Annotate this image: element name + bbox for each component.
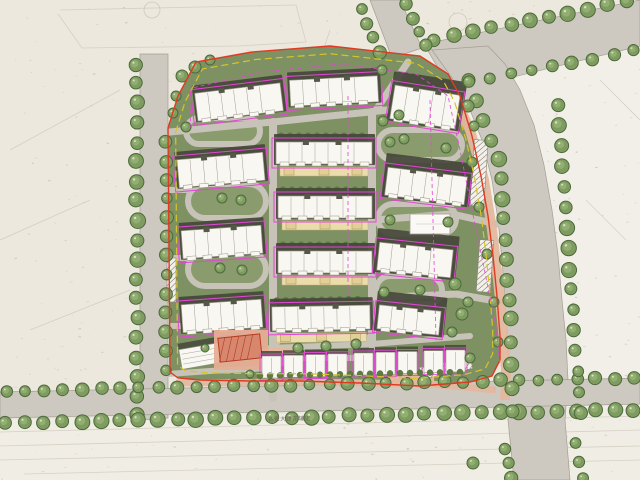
tree xyxy=(447,327,457,337)
balcony xyxy=(396,270,405,275)
tree xyxy=(130,76,143,89)
tree xyxy=(131,234,144,247)
tree xyxy=(129,58,142,71)
garden-pavilion xyxy=(352,277,362,284)
balcony xyxy=(381,268,390,273)
tree xyxy=(75,415,90,430)
balcony xyxy=(215,182,224,187)
tree xyxy=(385,215,395,225)
hedge-tree xyxy=(447,369,453,375)
building-M1 xyxy=(272,133,376,176)
survey-mark xyxy=(151,436,152,437)
survey-mark xyxy=(258,478,259,479)
tree xyxy=(378,116,388,126)
balcony xyxy=(308,328,317,332)
hedge-tree xyxy=(307,372,313,378)
survey-mark xyxy=(15,60,16,61)
tree xyxy=(565,283,577,295)
survey-mark xyxy=(460,448,462,449)
tree xyxy=(208,410,223,425)
balcony xyxy=(356,327,365,331)
tree xyxy=(570,438,581,449)
balcony xyxy=(359,100,368,104)
tree xyxy=(589,403,603,417)
survey-mark xyxy=(123,7,125,8)
balcony xyxy=(276,329,285,333)
tree xyxy=(437,406,452,421)
tree xyxy=(503,294,516,307)
survey-mark xyxy=(24,112,25,113)
balcony xyxy=(436,199,445,204)
balcony xyxy=(187,256,196,261)
building-L1 xyxy=(172,144,269,192)
balcony xyxy=(330,271,339,275)
tree xyxy=(367,31,378,42)
stair-core xyxy=(336,140,342,145)
survey-mark xyxy=(611,471,612,472)
survey-mark xyxy=(81,322,82,323)
tree xyxy=(561,262,576,277)
tree xyxy=(497,212,510,225)
balcony xyxy=(183,185,192,190)
tree xyxy=(526,65,537,76)
survey-mark xyxy=(625,344,628,345)
survey-mark xyxy=(344,427,346,428)
balcony xyxy=(340,328,349,332)
tree xyxy=(130,213,146,229)
site-plan-drawing: 各置大建花辅里 xyxy=(0,0,640,480)
stair-core xyxy=(410,168,417,174)
tree xyxy=(495,192,510,207)
tree xyxy=(455,405,471,421)
balcony xyxy=(324,328,333,332)
stair-core xyxy=(400,242,406,248)
survey-mark xyxy=(556,206,557,207)
survey-mark xyxy=(339,14,340,15)
survey-mark xyxy=(35,451,36,452)
tree xyxy=(567,323,580,336)
tree xyxy=(417,407,430,420)
tree xyxy=(37,416,50,429)
tree xyxy=(628,372,640,385)
kindergarten-building xyxy=(217,334,262,362)
survey-mark xyxy=(426,23,429,25)
balcony xyxy=(420,197,429,202)
survey-mark xyxy=(326,20,328,21)
tree xyxy=(160,156,173,169)
tree xyxy=(463,297,473,307)
tree xyxy=(129,351,143,365)
survey-mark xyxy=(461,9,463,10)
tree xyxy=(491,151,506,166)
tree xyxy=(441,143,451,153)
survey-mark xyxy=(553,209,554,210)
tree xyxy=(209,381,221,393)
tree xyxy=(504,336,517,349)
survey-mark xyxy=(80,370,82,371)
survey-mark xyxy=(109,61,111,63)
hedge-tree xyxy=(407,370,413,376)
stair-core xyxy=(425,245,431,251)
survey-mark xyxy=(625,375,627,376)
tree xyxy=(131,413,145,427)
tree xyxy=(248,380,260,392)
tree xyxy=(608,403,623,418)
stair-core xyxy=(203,227,209,232)
building-M2 xyxy=(274,187,376,230)
stair-core xyxy=(344,75,350,80)
balcony xyxy=(327,102,336,106)
tree xyxy=(217,193,227,203)
survey-mark xyxy=(59,346,60,347)
garden-pavilion xyxy=(280,335,290,342)
tree xyxy=(160,174,172,186)
tree xyxy=(504,357,519,372)
stair-core xyxy=(230,299,236,304)
balcony xyxy=(397,329,406,334)
balcony xyxy=(346,271,355,275)
survey-mark xyxy=(14,258,17,259)
tree xyxy=(443,217,453,227)
survey-mark xyxy=(630,117,633,118)
tree xyxy=(399,134,409,144)
garden-pavilion xyxy=(320,277,330,284)
tree xyxy=(114,382,126,394)
tree xyxy=(171,381,184,394)
balcony xyxy=(251,251,260,256)
tree xyxy=(475,406,488,419)
tree xyxy=(580,2,595,17)
stair-core xyxy=(437,171,444,177)
balcony xyxy=(219,254,228,259)
garden-pavilion xyxy=(352,222,362,229)
survey-mark xyxy=(533,5,535,6)
tree xyxy=(463,76,474,87)
survey-mark xyxy=(556,113,558,114)
tree xyxy=(131,137,144,150)
survey-mark xyxy=(488,10,491,11)
tree xyxy=(150,412,165,427)
survey-mark xyxy=(173,73,174,74)
survey-mark xyxy=(371,443,374,444)
tree xyxy=(160,230,172,242)
tree xyxy=(324,379,335,390)
survey-mark xyxy=(63,92,65,93)
tree xyxy=(449,278,461,290)
survey-mark xyxy=(66,271,67,272)
survey-mark xyxy=(107,143,109,144)
survey-mark xyxy=(57,369,58,370)
tree xyxy=(499,252,513,266)
tree xyxy=(401,377,414,390)
tree xyxy=(499,443,510,454)
stair-core xyxy=(203,301,209,306)
tree xyxy=(342,408,356,422)
garden-pavilion xyxy=(284,168,294,175)
survey-mark xyxy=(90,105,93,106)
garden-pavilion xyxy=(316,334,326,341)
tree xyxy=(467,457,479,469)
stair-core xyxy=(435,89,442,95)
tree xyxy=(0,416,11,429)
stair-core xyxy=(304,249,310,254)
tree xyxy=(628,45,639,56)
stair-core xyxy=(201,155,207,161)
balcony xyxy=(344,162,353,166)
tree xyxy=(130,252,145,267)
balcony xyxy=(292,328,301,332)
tree xyxy=(555,159,570,174)
tree xyxy=(131,311,145,325)
tree xyxy=(531,406,545,420)
balcony xyxy=(314,216,323,220)
survey-mark xyxy=(101,352,103,353)
balcony xyxy=(282,216,291,220)
tree xyxy=(465,24,480,39)
balcony xyxy=(311,103,320,107)
balcony xyxy=(295,104,304,108)
tree xyxy=(533,375,543,385)
tree xyxy=(181,122,191,132)
balcony xyxy=(203,255,212,260)
balcony xyxy=(202,118,211,123)
tree xyxy=(504,311,519,326)
garden-pavilion xyxy=(319,168,329,175)
survey-mark xyxy=(423,477,424,478)
balcony xyxy=(203,329,212,334)
stair-core xyxy=(304,194,310,199)
garden-pavilion xyxy=(286,277,296,284)
tree xyxy=(94,413,109,428)
tree xyxy=(160,211,173,224)
tree xyxy=(227,411,241,425)
tree xyxy=(550,404,564,418)
balcony xyxy=(280,162,289,166)
tree xyxy=(361,409,374,422)
hedge-tree xyxy=(297,372,303,378)
hedge-tree xyxy=(377,371,383,377)
tree xyxy=(555,139,569,153)
garden-pavilion xyxy=(320,222,330,229)
survey-mark xyxy=(48,180,51,181)
tree xyxy=(505,18,519,32)
tree xyxy=(129,291,142,304)
tree xyxy=(321,341,331,351)
stair-core xyxy=(417,307,423,313)
tree xyxy=(380,407,395,422)
stair-core xyxy=(230,225,236,230)
hedge-tree xyxy=(397,370,403,376)
tree xyxy=(380,377,391,388)
survey-mark xyxy=(568,198,570,199)
hedge-tree xyxy=(457,369,463,375)
survey-mark xyxy=(26,18,28,19)
tree xyxy=(130,95,144,109)
survey-mark xyxy=(547,151,548,152)
stair-core xyxy=(333,304,339,309)
stair-core xyxy=(230,153,236,159)
balcony xyxy=(296,162,305,166)
balcony xyxy=(428,274,437,279)
tree xyxy=(506,405,519,418)
tree xyxy=(574,406,587,419)
townhouse xyxy=(444,345,467,374)
tree xyxy=(56,415,69,428)
garden-pavilion xyxy=(352,168,362,175)
tree xyxy=(38,385,50,397)
tree xyxy=(76,383,90,397)
tree xyxy=(484,73,495,84)
tree xyxy=(456,308,468,320)
survey-mark xyxy=(31,72,32,73)
balcony xyxy=(199,183,208,188)
tree xyxy=(415,285,425,295)
tree xyxy=(505,381,519,395)
balcony xyxy=(343,101,352,105)
tree xyxy=(394,110,404,120)
tree xyxy=(188,412,204,428)
tree xyxy=(361,18,373,30)
tree xyxy=(56,384,68,396)
tree xyxy=(1,386,13,398)
tree xyxy=(565,56,578,69)
balcony xyxy=(388,194,397,199)
tree xyxy=(129,153,144,168)
survey-mark xyxy=(268,449,269,450)
stair-core xyxy=(336,194,342,199)
balcony xyxy=(249,112,258,117)
survey-mark xyxy=(116,221,118,222)
tree xyxy=(130,116,143,129)
tree xyxy=(586,53,598,65)
survey-mark xyxy=(113,99,114,100)
hedge-tree xyxy=(347,371,353,377)
balcony xyxy=(187,330,196,335)
stair-core xyxy=(247,84,254,90)
tree xyxy=(406,12,419,25)
tree xyxy=(573,387,584,398)
tree xyxy=(438,375,451,388)
tree xyxy=(129,193,143,207)
tree xyxy=(113,414,126,427)
tree xyxy=(447,28,462,43)
survey-mark xyxy=(70,281,73,282)
tree xyxy=(608,49,620,61)
tree xyxy=(552,374,563,385)
tree xyxy=(322,410,335,423)
tree xyxy=(500,274,514,288)
stair-core xyxy=(336,249,342,254)
tree xyxy=(494,373,507,386)
stair-core xyxy=(299,304,305,309)
tree xyxy=(495,172,508,185)
balcony xyxy=(234,114,243,119)
tree xyxy=(236,195,246,205)
tree xyxy=(559,201,572,214)
tree xyxy=(482,249,492,259)
tree xyxy=(626,404,640,418)
tree xyxy=(385,137,395,147)
tree xyxy=(465,353,475,363)
survey-mark xyxy=(55,222,56,223)
site-plan-page: 各置大建花辅里 xyxy=(0,0,640,480)
tree xyxy=(506,68,517,79)
tree xyxy=(153,381,165,393)
survey-mark xyxy=(614,275,617,276)
tree xyxy=(573,456,584,467)
stair-core xyxy=(303,140,309,145)
survey-mark xyxy=(567,436,568,437)
tree xyxy=(600,0,614,11)
tree xyxy=(543,10,556,23)
tree xyxy=(129,330,143,344)
tree xyxy=(573,366,584,377)
balcony xyxy=(265,110,274,115)
building-M3 xyxy=(274,242,376,285)
tree xyxy=(162,193,172,203)
tree xyxy=(400,0,413,10)
tree xyxy=(357,4,368,15)
balcony xyxy=(330,216,339,220)
tree xyxy=(191,382,202,393)
building-body xyxy=(278,196,372,218)
tree xyxy=(96,382,109,395)
stair-core xyxy=(314,77,320,82)
balcony xyxy=(412,272,421,277)
tree xyxy=(505,471,518,480)
tree xyxy=(485,21,498,34)
balcony xyxy=(218,116,227,121)
survey-mark xyxy=(184,429,185,430)
tree xyxy=(551,118,566,133)
balcony xyxy=(251,325,260,330)
balcony xyxy=(247,179,256,184)
tree xyxy=(467,157,477,167)
balcony xyxy=(346,216,355,220)
tree xyxy=(561,240,576,255)
tree xyxy=(293,343,303,353)
balcony xyxy=(381,327,390,332)
tree xyxy=(588,371,601,384)
stair-core xyxy=(413,86,420,92)
hedge-tree xyxy=(387,370,393,376)
hedge-tree xyxy=(417,370,423,376)
tree xyxy=(201,344,209,352)
survey-mark xyxy=(583,346,586,347)
tree xyxy=(160,248,173,261)
tree xyxy=(559,220,574,235)
tree xyxy=(172,413,185,426)
tree xyxy=(247,410,261,424)
tree xyxy=(569,344,581,356)
tree xyxy=(398,408,413,423)
balcony xyxy=(328,162,337,166)
tree xyxy=(552,99,565,112)
survey-mark xyxy=(453,12,455,13)
survey-mark xyxy=(55,69,56,70)
hedge-tree xyxy=(437,369,443,375)
tree xyxy=(379,287,389,297)
tree xyxy=(414,26,424,36)
building-body xyxy=(276,142,372,164)
survey-mark xyxy=(72,315,73,316)
tree xyxy=(420,39,432,51)
survey-mark xyxy=(545,148,546,149)
survey-mark xyxy=(96,24,98,25)
balcony xyxy=(235,253,244,258)
tree xyxy=(18,416,31,429)
balcony xyxy=(413,330,422,335)
